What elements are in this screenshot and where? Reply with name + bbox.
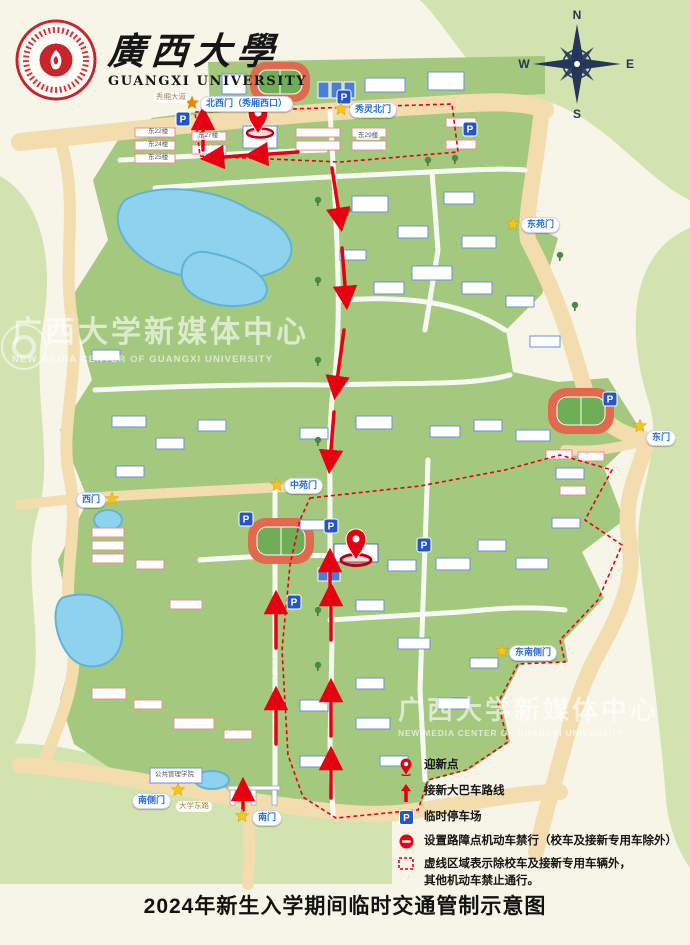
- svg-text:P: P: [291, 598, 298, 609]
- parking-icon: P: [417, 538, 431, 552]
- svg-text:P: P: [607, 395, 614, 406]
- legend-label: 接新大巴车路线: [424, 783, 505, 800]
- university-name-cn: 廣西大學: [107, 31, 309, 72]
- poster-title: 2024年新生入学期间临时交通管制示意图: [0, 890, 690, 920]
- legend-label: 虚线区域表示除校车及接新专用车辆外， 其他机动车禁止通行。: [424, 856, 631, 889]
- gate-label-east: 东门: [646, 430, 676, 446]
- parking-icon: P: [337, 90, 351, 104]
- building-label: 东24楼: [146, 141, 170, 149]
- pin-icon: [396, 758, 416, 776]
- gate-label-zhongyuan: 中苑门: [284, 478, 323, 494]
- no-entry-icon: [396, 834, 416, 849]
- arrow-up-icon: [396, 784, 416, 802]
- gate-label-southeast-side: 东南侧门: [509, 645, 557, 661]
- traffic-control-map-poster: P P P P P P P P: [0, 0, 690, 945]
- legend-row-dashed-area: 虚线区域表示除校车及接新专用车辆外， 其他机动车禁止通行。: [396, 856, 688, 889]
- legend-label: 设置路障点机动车禁行（校车及接新专用车除外）: [424, 833, 677, 850]
- building-label: 东29楼: [356, 132, 380, 140]
- svg-text:P: P: [180, 115, 187, 126]
- legend-row-roadblock: 设置路障点机动车禁行（校车及接新专用车除外）: [396, 833, 688, 850]
- gate-label-south: 南门: [252, 810, 282, 826]
- university-seal-logo: [14, 18, 98, 102]
- header: 廣西大學 GUANGXI UNIVERSITY: [14, 18, 307, 102]
- legend-row-welcome-point: 迎新点: [396, 757, 688, 776]
- gate-label-dongyuan: 东苑门: [521, 217, 560, 233]
- gate-label-west: 西门: [76, 492, 106, 508]
- legend-row-parking: P 临时停车场: [396, 809, 688, 826]
- parking-icon: P: [463, 122, 477, 136]
- compass-south-label: S: [573, 107, 581, 121]
- svg-text:P: P: [341, 93, 348, 104]
- parking-icon: P: [396, 810, 416, 825]
- building-label: 公共管理学院: [153, 771, 196, 779]
- legend-label: 临时停车场: [424, 809, 482, 826]
- parking-icon: P: [324, 519, 338, 533]
- building-label: 东25楼: [146, 154, 170, 162]
- compass-east-label: E: [626, 57, 634, 71]
- gate-label-xiuling-north: 秀灵北门: [349, 102, 397, 118]
- parking-icon: P: [176, 112, 190, 126]
- building-label: 东22楼: [146, 128, 170, 136]
- road-label-daxue-east-road: 大学东路: [176, 801, 212, 812]
- map-legend: 迎新点 接新大巴车路线 P 临时停车场 设置路障点机动车禁行（校车及接新专用车除…: [396, 757, 688, 897]
- svg-text:P: P: [467, 125, 474, 136]
- university-name-en: GUANGXI UNIVERSITY: [108, 74, 307, 89]
- compass-north-label: N: [573, 8, 582, 22]
- compass-west-label: W: [518, 57, 530, 71]
- building-label: 东27楼: [196, 132, 220, 140]
- legend-label: 迎新点: [424, 757, 459, 774]
- svg-text:P: P: [403, 813, 410, 824]
- parking-icon: P: [603, 392, 617, 406]
- dashed-area-icon: [396, 857, 416, 870]
- gate-label-south-side: 南侧门: [132, 793, 171, 809]
- parking-icon: P: [287, 595, 301, 609]
- svg-text:P: P: [328, 522, 335, 533]
- legend-row-bus-route: 接新大巴车路线: [396, 783, 688, 802]
- svg-text:P: P: [243, 515, 250, 526]
- svg-text:P: P: [421, 541, 428, 552]
- parking-icon: P: [239, 512, 253, 526]
